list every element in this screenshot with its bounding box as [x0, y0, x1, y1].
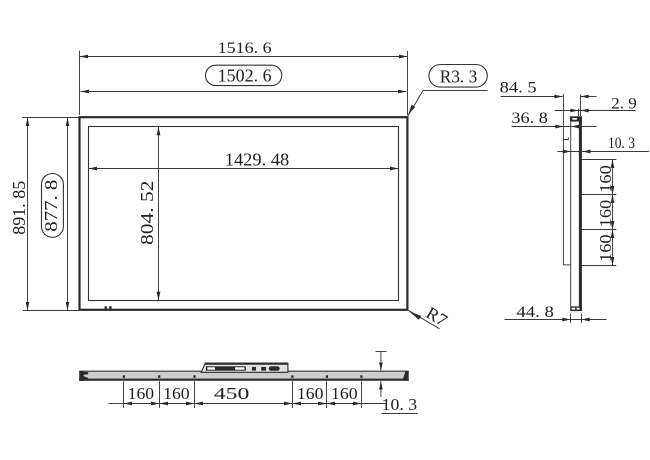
svg-text:804. 52: 804. 52 — [137, 180, 157, 245]
svg-text:10. 3: 10. 3 — [608, 135, 635, 152]
svg-text:160: 160 — [596, 234, 615, 262]
svg-text:44. 8: 44. 8 — [516, 304, 554, 321]
svg-text:36. 8: 36. 8 — [511, 110, 548, 127]
svg-text:160: 160 — [163, 384, 190, 403]
svg-text:10. 3: 10. 3 — [382, 395, 418, 414]
svg-text:84. 5: 84. 5 — [500, 79, 537, 96]
svg-text:877. 8: 877. 8 — [41, 179, 61, 231]
svg-text:2. 9: 2. 9 — [611, 96, 637, 113]
svg-text:R3. 3: R3. 3 — [440, 66, 478, 86]
svg-text:1516. 6: 1516. 6 — [218, 40, 272, 57]
svg-text:160: 160 — [596, 200, 615, 228]
svg-text:160: 160 — [596, 165, 615, 193]
svg-text:160: 160 — [128, 384, 155, 403]
svg-text:160: 160 — [331, 384, 358, 403]
svg-text:1429. 48: 1429. 48 — [225, 150, 290, 170]
svg-text:1502. 6: 1502. 6 — [218, 65, 272, 85]
svg-text:450: 450 — [214, 384, 250, 403]
svg-text:160: 160 — [297, 384, 324, 403]
svg-text:891. 85: 891. 85 — [9, 181, 29, 235]
